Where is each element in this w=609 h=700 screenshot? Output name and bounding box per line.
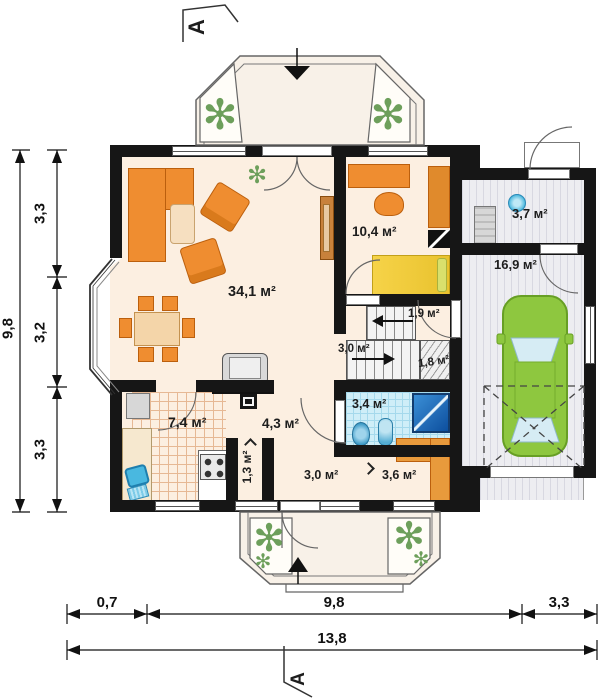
room-area-garage: 16,9 м² bbox=[494, 257, 537, 272]
stairs-arrow-icon bbox=[384, 353, 395, 365]
desk bbox=[348, 164, 410, 188]
bay-floor bbox=[88, 258, 122, 396]
plant-icon: ✻ bbox=[198, 94, 242, 136]
room-area-bathroom: 3,4 м² bbox=[352, 397, 386, 411]
dining-chair bbox=[182, 318, 195, 338]
stairs-arrow-stem bbox=[352, 358, 384, 360]
fridge bbox=[126, 393, 150, 419]
boiler bbox=[474, 206, 496, 244]
stairs-arrow-up-icon bbox=[372, 315, 383, 327]
hall-passage bbox=[274, 380, 334, 392]
dining-chair bbox=[138, 347, 154, 362]
dim-bottom-total: 13,8 bbox=[310, 630, 354, 647]
room-area-stairs: 3,0 м² bbox=[338, 343, 370, 355]
room-area-utility: 3,7 м² bbox=[512, 206, 548, 221]
window-kitchen-1 bbox=[155, 501, 200, 511]
bathroom-door-opening bbox=[335, 400, 345, 443]
plant-icon: ✻ bbox=[410, 550, 432, 570]
stairs-passage bbox=[334, 334, 346, 380]
wall-left-upper bbox=[110, 145, 122, 258]
dining-chair bbox=[162, 296, 178, 311]
dim-bottom-seg1: 0,7 bbox=[89, 594, 125, 611]
room-area-hall: 4,3 м² bbox=[262, 416, 299, 431]
bedroom-wardrobe bbox=[428, 166, 450, 228]
garage-utility-door-opening bbox=[540, 244, 578, 254]
garage-gate-opening bbox=[490, 466, 574, 478]
wall-pantry-right bbox=[262, 438, 274, 502]
bedroom-tv bbox=[428, 230, 450, 248]
wall-pantry-left bbox=[226, 438, 238, 502]
section-marker-bottom: A bbox=[288, 668, 310, 690]
dining-chair bbox=[162, 347, 178, 362]
dim-left-seg2: 3,2 bbox=[32, 319, 49, 347]
coffee-table bbox=[170, 204, 195, 244]
dining-table bbox=[134, 312, 180, 346]
room-area-hall-upper: 1,9 м² bbox=[408, 308, 440, 320]
washbasin bbox=[378, 418, 393, 446]
plant-icon: ✻ bbox=[252, 552, 274, 572]
room-area-bedroom: 10,4 м² bbox=[352, 224, 397, 239]
toilet bbox=[352, 422, 370, 446]
driveway-apron bbox=[472, 478, 584, 500]
wall-corner-closure bbox=[450, 478, 480, 512]
tv-cabinet-inner bbox=[323, 204, 330, 252]
room-area-pantry: 1,3 м² bbox=[240, 444, 254, 490]
kitchen-passage bbox=[156, 380, 196, 392]
window-hall-bottom bbox=[320, 501, 360, 511]
room-area-hall-lower: 3,0 м² bbox=[304, 468, 338, 482]
front-door-opening bbox=[262, 146, 332, 156]
dim-left-seg1: 3,3 bbox=[32, 200, 49, 228]
dim-left-seg3: 3,3 bbox=[32, 436, 49, 464]
room-area-wardrobe: 3,6 м² bbox=[382, 468, 416, 482]
utility-landing bbox=[524, 142, 580, 168]
bed-pillow bbox=[437, 258, 447, 292]
floor-plan-canvas: ✻ ✻ ✻ ✻ ✻ ✻ ✻ 34,1 м² 10,4 м² 3,7 м² 16,… bbox=[0, 0, 609, 700]
fireplace-stove bbox=[240, 394, 257, 409]
stove bbox=[200, 454, 226, 480]
bedroom-door-opening bbox=[346, 295, 380, 305]
window-wardrobe-bottom bbox=[393, 501, 435, 511]
desk-chair bbox=[374, 192, 404, 216]
room-area-kitchen: 7,4 м² bbox=[168, 414, 206, 430]
plant-icon: ✻ bbox=[366, 94, 410, 136]
fireplace-inner bbox=[229, 357, 261, 379]
window-bedroom-top bbox=[368, 146, 428, 156]
window-kitchen-2 bbox=[235, 501, 278, 511]
wall-left-lower bbox=[110, 392, 122, 512]
window-garage-right bbox=[585, 306, 595, 364]
dim-bottom-seg3: 3,3 bbox=[541, 594, 577, 611]
shower bbox=[412, 393, 450, 433]
dining-chair bbox=[119, 318, 132, 338]
back-door-opening bbox=[280, 501, 320, 511]
window-living-top bbox=[172, 146, 246, 156]
stairs-arrow-stem bbox=[383, 320, 413, 322]
section-marker-top: A bbox=[184, 14, 210, 40]
utility-door-opening bbox=[528, 169, 570, 179]
dim-bottom-seg2: 9,8 bbox=[316, 594, 352, 611]
corner-sofa-side bbox=[128, 168, 166, 262]
garage-house-door-opening bbox=[451, 300, 461, 338]
dining-chair bbox=[138, 296, 154, 311]
plant-icon: ✻ bbox=[244, 164, 270, 188]
room-area-living: 34,1 м² bbox=[228, 284, 276, 300]
dim-left-total: 9,8 bbox=[0, 312, 17, 346]
wall-bathroom-bottom bbox=[334, 445, 462, 457]
